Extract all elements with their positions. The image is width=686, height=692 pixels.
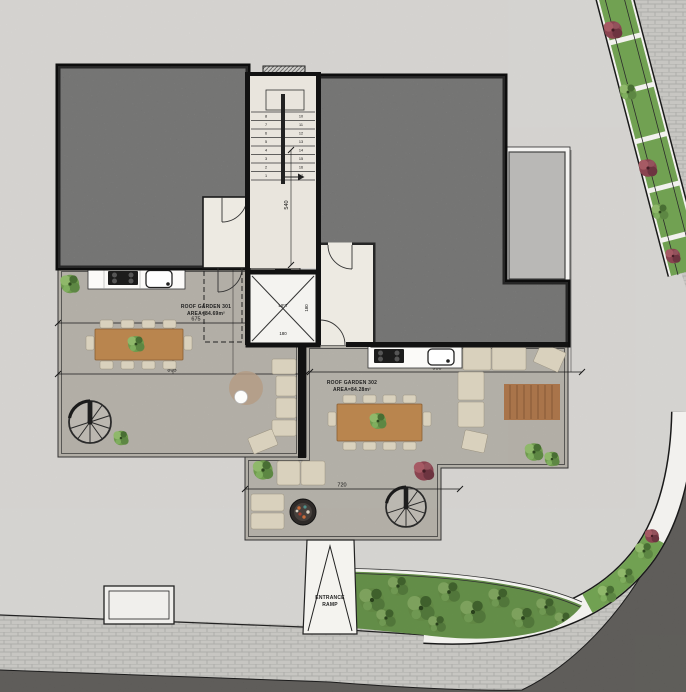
svg-text:16: 16 <box>299 166 303 170</box>
spiral-stair-lower <box>386 487 426 527</box>
svg-text:10: 10 <box>299 115 303 119</box>
svg-text:2: 2 <box>265 166 267 170</box>
sink-302 <box>428 349 454 365</box>
dim-540: 540 <box>284 200 290 209</box>
wall-terrace-divider <box>298 345 306 458</box>
entrance-ramp-label-2: RAMP <box>322 602 338 608</box>
roof-garden-301-area: AREA=84.69m² <box>187 311 225 317</box>
dim-675: 675 <box>191 317 200 323</box>
svg-text:5: 5 <box>265 140 267 144</box>
floor-plan-canvas: 675 805 300 950 720 <box>0 0 686 692</box>
svg-text:8: 8 <box>265 115 267 119</box>
roof-garden-302-name: ROOF GARDEN 302 <box>327 380 377 386</box>
svg-text:4: 4 <box>265 149 267 153</box>
wall-kitchen-302-b <box>346 342 568 347</box>
svg-text:1: 1 <box>265 174 267 178</box>
lift-shaft: LIFT 180 180 <box>248 269 318 345</box>
svg-text:15: 15 <box>299 157 303 161</box>
kitchen-302 <box>368 346 462 368</box>
svg-text:12: 12 <box>299 132 303 136</box>
roof-light <box>509 152 565 279</box>
wall-stair-north <box>245 72 321 76</box>
kitchen-301 <box>88 268 185 289</box>
roof-garden-302-area: AREA=84.28m² <box>333 387 371 393</box>
lift-door <box>275 269 291 274</box>
svg-text:7: 7 <box>265 123 267 127</box>
svg-text:14: 14 <box>299 149 303 153</box>
site-plan-svg: 675 805 300 950 720 <box>0 0 686 692</box>
sidewalk-notch <box>104 586 174 624</box>
svg-text:6: 6 <box>265 132 267 136</box>
lift-width-dim: 180 <box>279 331 287 336</box>
roof-garden-301-name: ROOF GARDEN 301 <box>181 304 231 310</box>
entrance-ramp: ENTRANCE RAMP <box>303 540 357 634</box>
svg-text:3: 3 <box>265 157 267 161</box>
svg-text:17: 17 <box>299 174 303 178</box>
rug-302-stripes <box>510 385 552 419</box>
lift-label: LIFT <box>278 303 287 308</box>
hall-right-of-stairs <box>318 243 373 346</box>
entrance-ramp-label-1: ENTRANCE <box>315 595 345 601</box>
fire-pit <box>290 499 316 525</box>
spiral-stair-301 <box>69 401 111 443</box>
cooktop-301 <box>108 271 138 285</box>
svg-text:11: 11 <box>299 123 303 127</box>
svg-text:13: 13 <box>299 140 303 144</box>
cooktop-302 <box>374 349 404 363</box>
lift-depth-dim: 180 <box>304 304 309 312</box>
dim-720: 720 <box>337 483 346 489</box>
